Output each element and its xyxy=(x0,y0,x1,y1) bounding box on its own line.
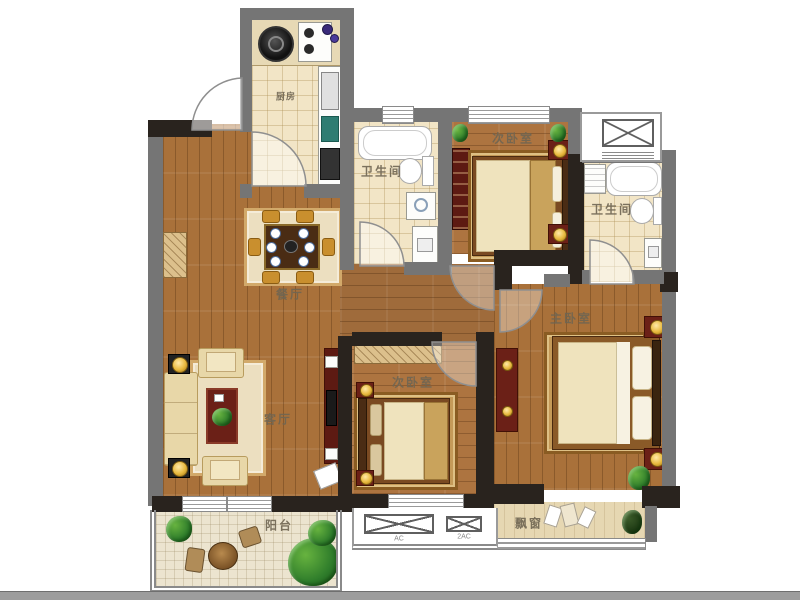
bath-right-door-arc xyxy=(590,240,634,284)
room-label-bedroom-bottom: 次卧室 xyxy=(392,374,434,391)
bedroom-bottom-door-arc xyxy=(432,342,476,386)
kitchen-door-arc xyxy=(252,132,306,186)
room-label-bay-window: 飘窗 xyxy=(515,515,543,532)
room-label-bedroom-top: 次卧室 xyxy=(492,130,534,147)
bath-top-door-arc xyxy=(360,222,404,266)
room-label-living: 客厅 xyxy=(264,411,292,428)
room-label-bath-right: 卫生间 xyxy=(591,201,633,218)
room-label-bath-top: 卫生间 xyxy=(361,163,403,180)
bedroom-top-door-arc xyxy=(450,266,494,310)
room-label-balcony: 阳台 xyxy=(265,517,293,534)
floor-plan: 厨房 卫生间 次卧室 卫生间 主卧室 次卧室 餐厅 客厅 阳台 飘窗 AC 2A… xyxy=(0,0,800,600)
master-door-arc xyxy=(500,290,542,332)
ac-label-small: AC xyxy=(394,536,404,543)
room-label-dining: 餐厅 xyxy=(276,286,304,303)
room-label-master-bedroom: 主卧室 xyxy=(550,310,592,327)
entry-door-arc xyxy=(192,78,242,130)
room-label-kitchen: 厨房 xyxy=(276,90,296,103)
footer-bar xyxy=(0,591,800,600)
ac-label-large: 2AC xyxy=(457,534,471,541)
door-arcs-layer xyxy=(0,0,800,600)
